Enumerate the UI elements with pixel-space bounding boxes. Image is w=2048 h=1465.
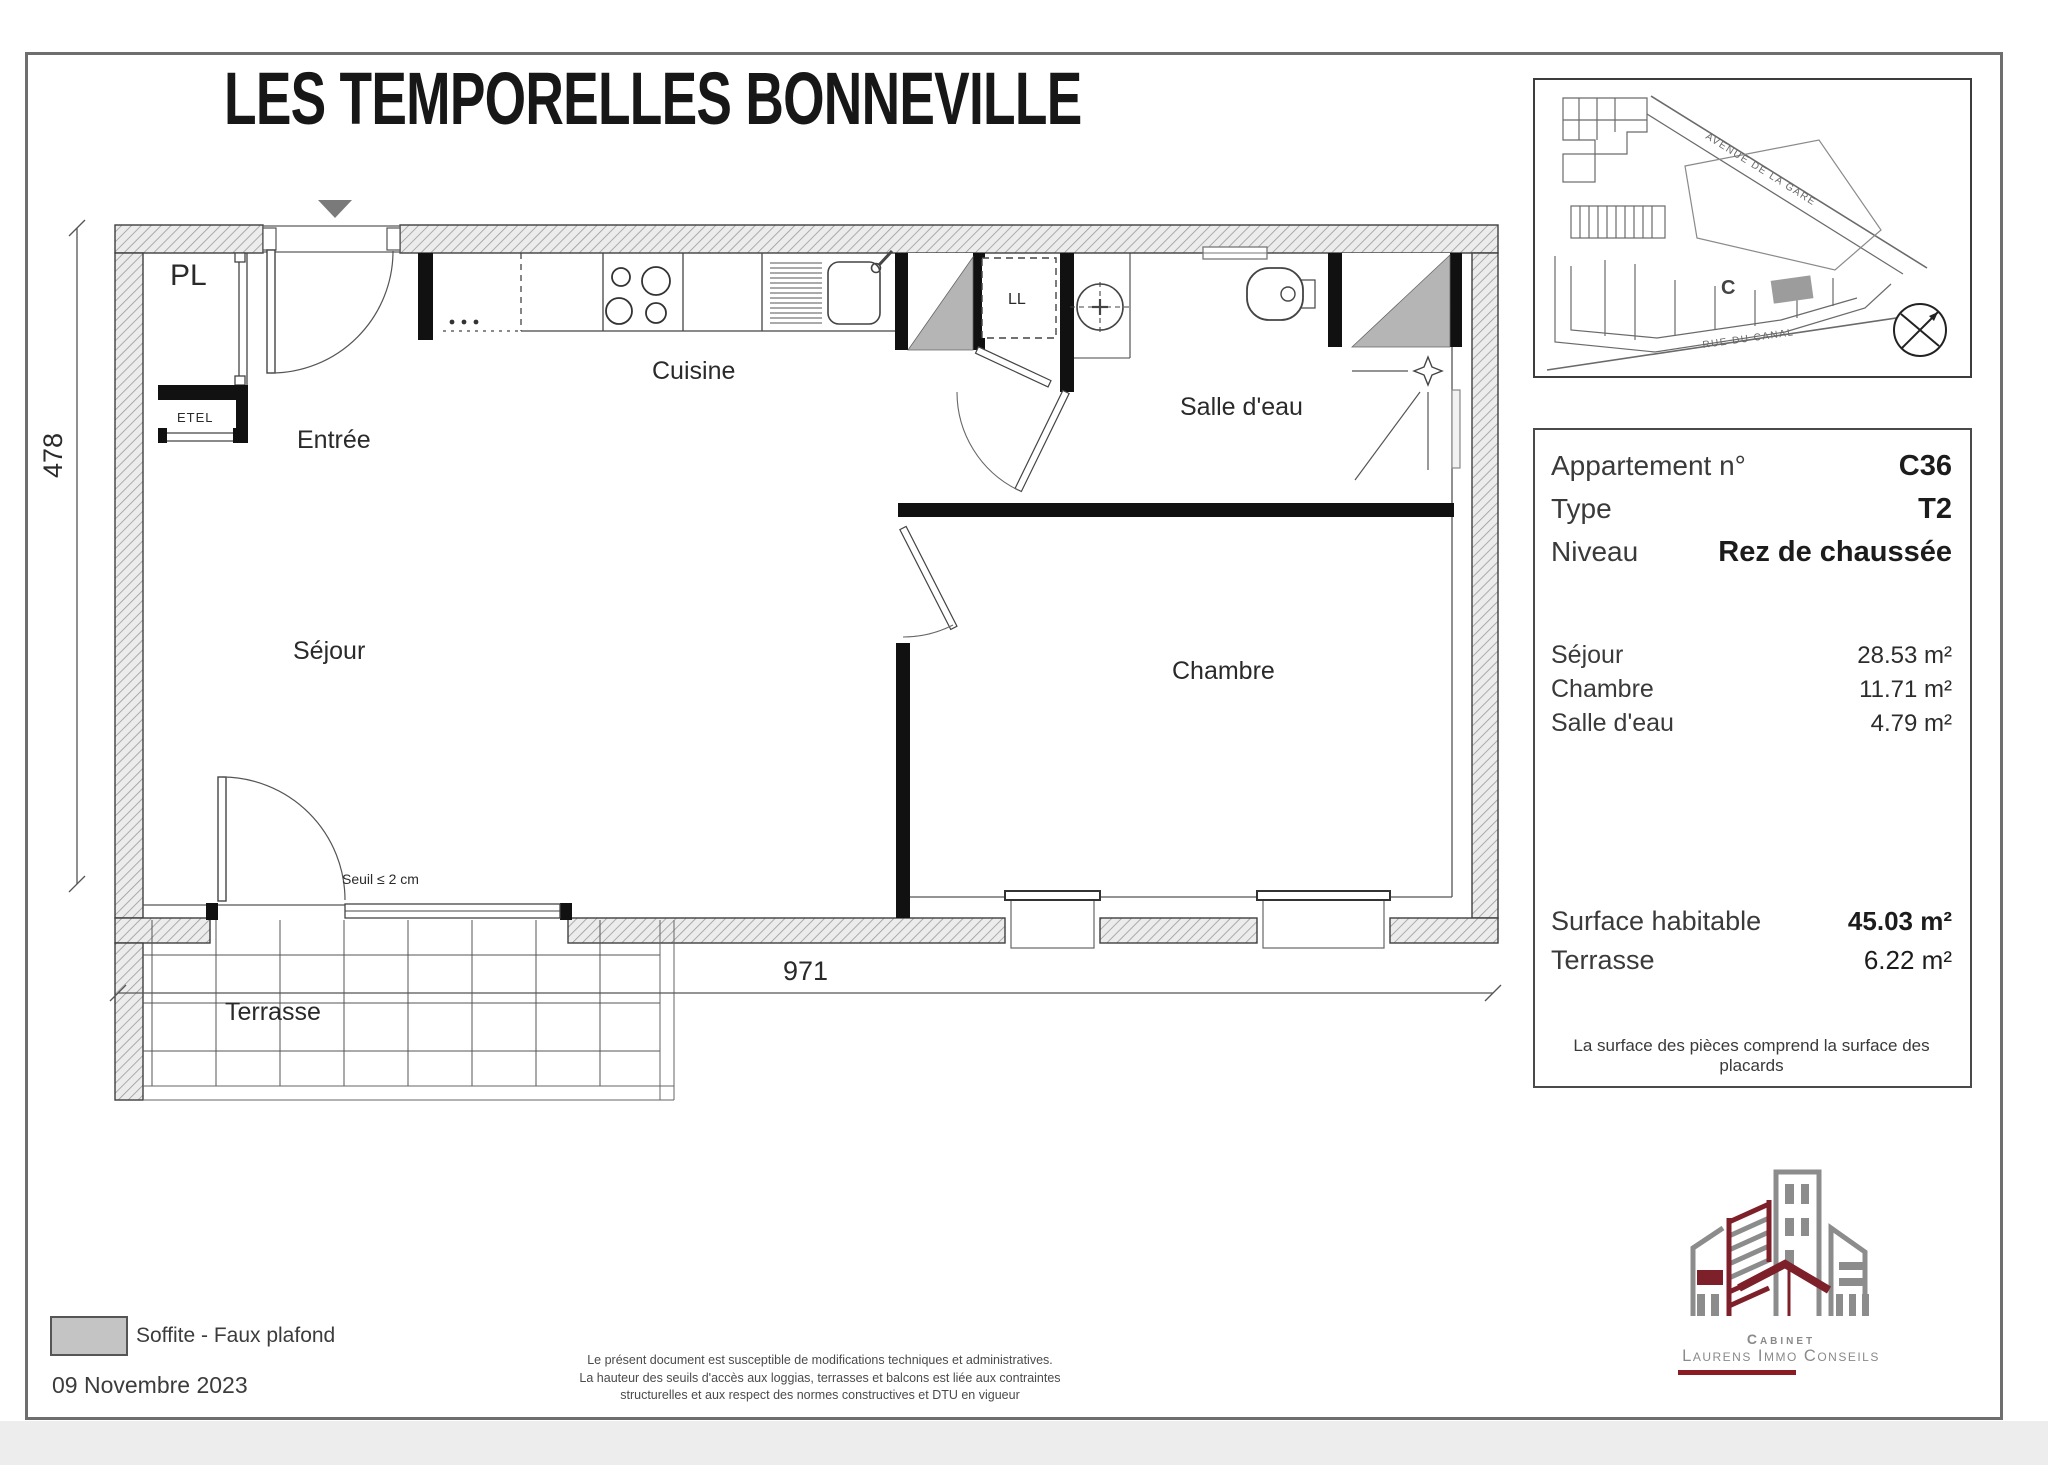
room-label-salle-deau: Salle d'eau: [1180, 393, 1303, 421]
building-label: C: [1721, 277, 1735, 299]
apartment-label: Appartement n°: [1551, 450, 1746, 482]
slider-window: [345, 904, 560, 918]
area-row-salle-deau: Salle d'eau 4.79 m²: [1551, 709, 1952, 738]
type-row: Type T2: [1551, 493, 1952, 526]
bathroom-door: [957, 390, 1069, 491]
terrace-row: Terrasse 6.22 m²: [1551, 945, 1952, 976]
room-label-terrasse: Terrasse: [225, 998, 321, 1026]
agency-logo-line1: Cabinet: [1676, 1331, 1886, 1347]
area-row-chambre: Chambre 11.71 m²: [1551, 675, 1952, 704]
washbasin-icon: [1070, 253, 1130, 358]
floor-plan: PL ETEL Entrée Cuisine LL Salle d'eau Sé…: [30, 140, 1560, 1120]
soffite-legend-label: Soffite - Faux plafond: [136, 1324, 335, 1348]
site-map-inset: C AVENUE DE LA GARE RUE DU CANAL: [1533, 78, 1972, 378]
surface-value: 45.03 m²: [1848, 906, 1952, 937]
surface-label: Surface habitable: [1551, 906, 1761, 937]
type-value: T2: [1918, 493, 1952, 526]
area-value: 28.53 m²: [1857, 642, 1952, 670]
dim-width-label: 971: [783, 956, 828, 986]
area-label: Chambre: [1551, 675, 1654, 704]
level-row: Niveau Rez de chaussée: [1551, 536, 1952, 569]
wc-icon: [1247, 268, 1315, 320]
document-date: 09 Novembre 2023: [52, 1372, 248, 1399]
type-label: Type: [1551, 493, 1612, 525]
area-row-sejour: Séjour 28.53 m²: [1551, 641, 1952, 670]
seuil-note: Seuil ≤ 2 cm: [342, 871, 419, 887]
drainer-icon: [770, 263, 822, 323]
room-label-entree: Entrée: [297, 426, 371, 454]
disclaimer-line-3: structurelles et aux respect des normes …: [500, 1387, 1140, 1405]
area-label: Salle d'eau: [1551, 709, 1674, 738]
soffite-legend-swatch: [50, 1316, 128, 1356]
shower-icon: [1352, 357, 1460, 480]
area-label: Séjour: [1551, 641, 1623, 670]
room-label-sejour: Séjour: [293, 637, 365, 665]
area-value: 4.79 m²: [1871, 710, 1952, 738]
street-label-avenue: AVENUE DE LA GARE: [1703, 131, 1817, 208]
bedroom-door: [900, 526, 957, 637]
room-label-pl: PL: [170, 259, 207, 292]
interior-outline: [143, 253, 1452, 905]
bathroom-window: [1203, 247, 1267, 259]
agency-logo: Cabinet Laurens Immo Conseils: [1676, 1166, 1886, 1375]
panel-note: La surface des pièces comprend la surfac…: [1551, 1036, 1952, 1076]
surface-row: Surface habitable 45.03 m²: [1551, 906, 1952, 937]
kitchen-counter: [418, 253, 895, 340]
disclaimer-line-2: La hauteur des seuils d'accès aux loggia…: [500, 1370, 1140, 1388]
level-value: Rez de chaussée: [1718, 536, 1952, 569]
disclaimer-line-1: Le présent document est susceptible de m…: [500, 1352, 1140, 1370]
compass-icon: [1894, 304, 1946, 356]
info-panel: Appartement n° C36 Type T2 Niveau Rez de…: [1533, 428, 1972, 1088]
sink-icon: [828, 251, 892, 324]
dim-height-label: 478: [38, 433, 68, 478]
terrace-decking: [143, 920, 674, 1100]
apartment-location-marker: [1771, 275, 1814, 303]
area-value: 11.71 m²: [1859, 676, 1952, 704]
pl-closet: [235, 253, 247, 385]
agency-logo-underline: [1678, 1370, 1796, 1375]
room-label-ll: LL: [1008, 291, 1026, 308]
apartment-row: Appartement n° C36: [1551, 450, 1952, 483]
agency-logo-icon: [1681, 1166, 1881, 1324]
page-title: LES TEMPORELLES BONNEVILLE: [224, 56, 1082, 141]
dimension-height: [69, 220, 85, 892]
room-label-etel: ETEL: [177, 410, 214, 425]
entrance-marker-icon: [318, 200, 352, 218]
apartment-value: C36: [1899, 450, 1952, 483]
terrace-value: 6.22 m²: [1864, 945, 1952, 976]
terrace-label: Terrasse: [1551, 945, 1655, 976]
interior-walls: [206, 253, 1462, 920]
room-label-cuisine: Cuisine: [652, 357, 735, 385]
disclaimer: Le présent document est susceptible de m…: [500, 1352, 1140, 1405]
agency-logo-line2: Laurens Immo Conseils: [1676, 1347, 1886, 1366]
washing-machine-slot: [976, 258, 1056, 387]
street-label-rue: RUE DU CANAL: [1702, 327, 1795, 351]
room-label-chambre: Chambre: [1172, 657, 1275, 685]
entrance-door: [263, 226, 400, 373]
terrace-door: [218, 777, 345, 901]
hob-icon: [606, 267, 670, 324]
level-label: Niveau: [1551, 536, 1638, 568]
page-bottom-shadow: [0, 1421, 2048, 1465]
site-map-drawing: C AVENUE DE LA GARE RUE DU CANAL: [1535, 80, 1970, 376]
